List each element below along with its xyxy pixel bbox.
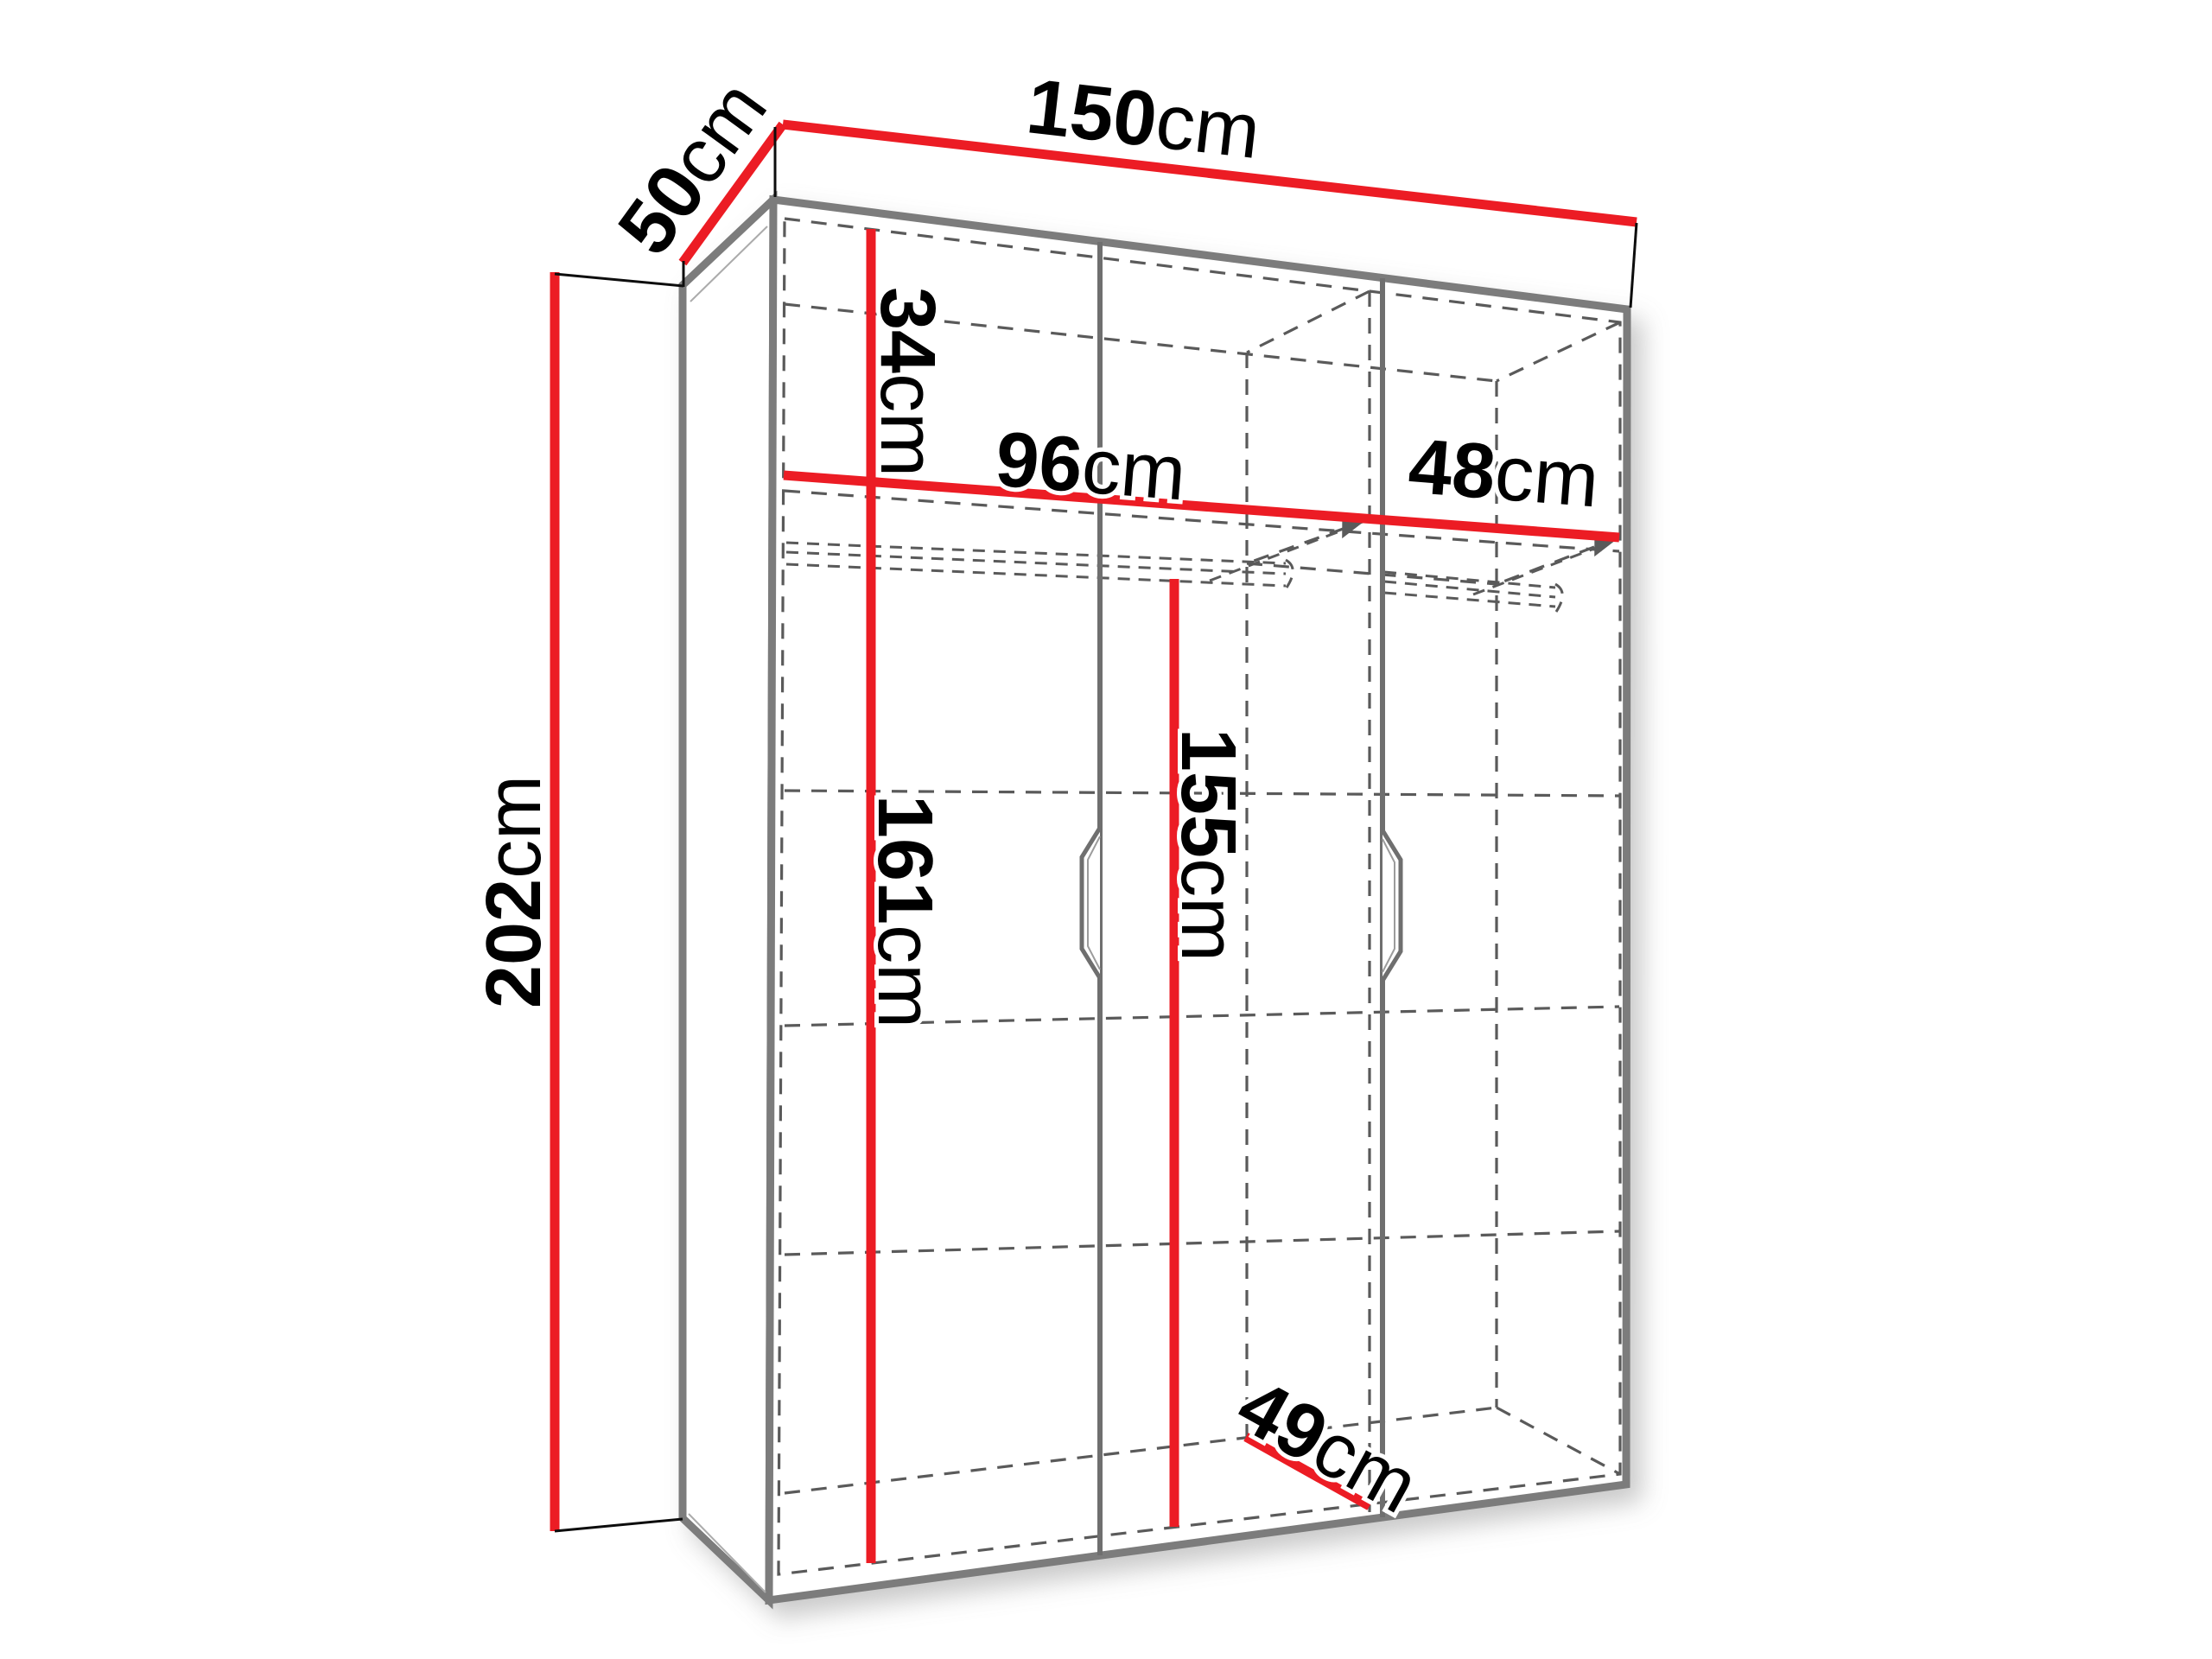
wardrobe-body (683, 200, 1627, 1600)
dim-label-height: 202cm (471, 775, 557, 1008)
dim-label-rail-height: 155cm (1165, 728, 1251, 962)
dim-label-right-width: 48cm (1406, 423, 1602, 524)
door-handle-right (1382, 830, 1401, 981)
door-handle-left (1082, 828, 1100, 978)
dim-label-top-shelf: 34cm (864, 287, 950, 477)
dim-label-left-height: 161cm (861, 795, 948, 1028)
dim-label-left-width: 96cm (993, 416, 1189, 518)
tick-height-bottom (555, 1519, 683, 1531)
wardrobe-dimension-diagram: 150cm 50cm 202cm 34cm 96cm 48cm 161cm 15… (0, 0, 2212, 1659)
tick-width-right (1630, 223, 1637, 308)
left-side-panel (683, 200, 773, 1600)
diagram-canvas: 150cm 50cm 202cm 34cm 96cm 48cm 161cm 15… (0, 0, 2212, 1659)
tick-height-top (555, 274, 683, 286)
